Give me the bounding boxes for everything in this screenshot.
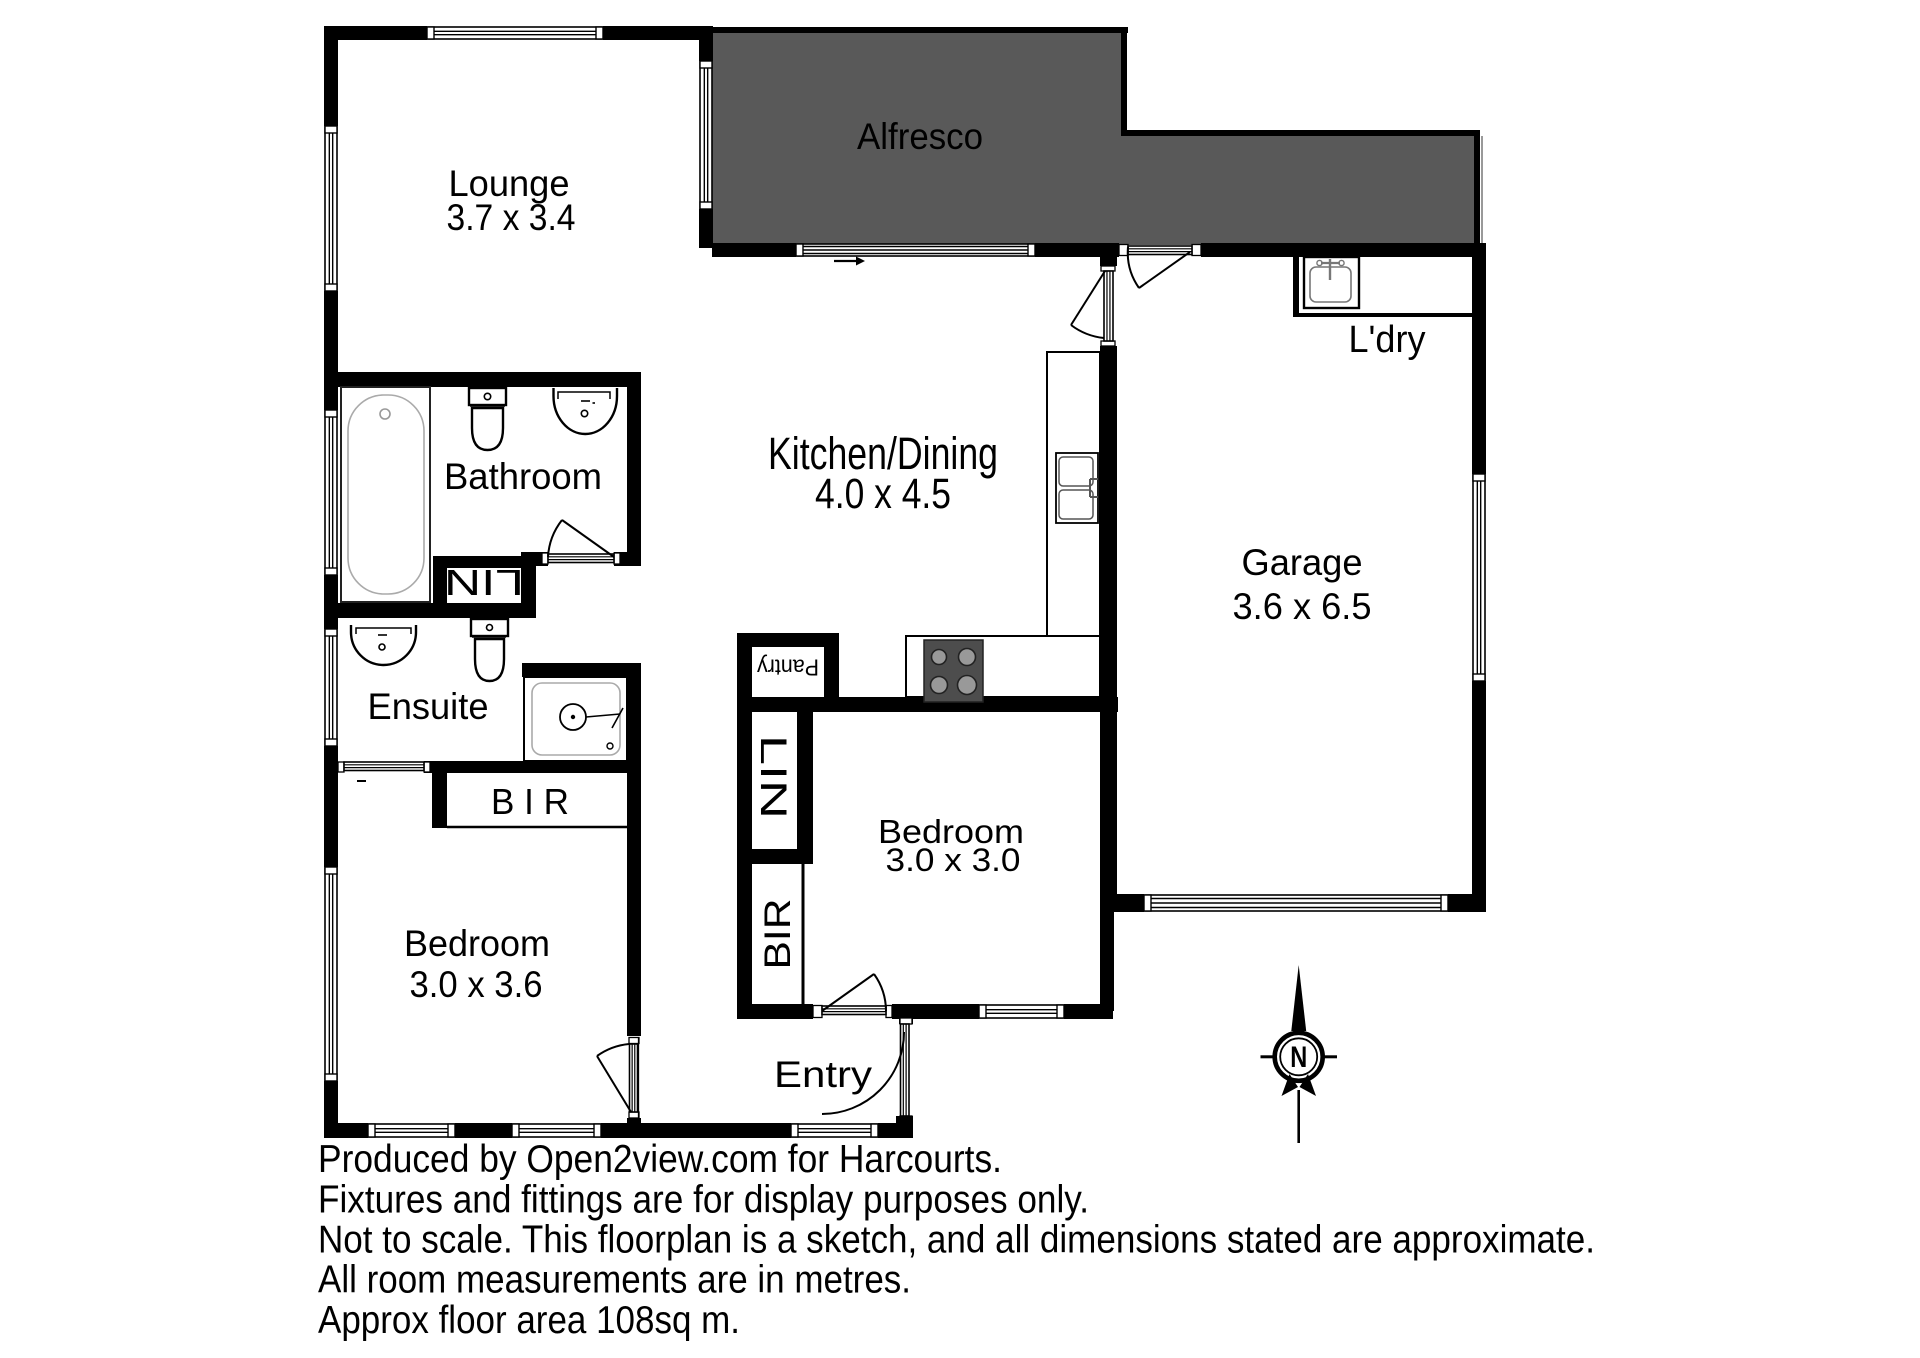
svg-text:Approx floor area 108sq m.: Approx floor area 108sq m. xyxy=(318,1299,740,1342)
svg-text:LIN: LIN xyxy=(444,562,524,603)
svg-text:Produced by Open2view.com for: Produced by Open2view.com for Harcourts. xyxy=(318,1138,1002,1181)
svg-text:All room measurements are in m: All room measurements are in metres. xyxy=(318,1259,911,1302)
svg-text:Fixtures and fittings are for: Fixtures and fittings are for display pu… xyxy=(318,1178,1089,1221)
svg-text:N: N xyxy=(1290,1041,1307,1074)
svg-text:Bathroom: Bathroom xyxy=(444,456,602,497)
svg-text:Bedroom: Bedroom xyxy=(404,923,550,964)
svg-text:3.7 x 3.4: 3.7 x 3.4 xyxy=(447,197,576,238)
svg-text:Ensuite: Ensuite xyxy=(368,686,489,727)
svg-text:LIN: LIN xyxy=(753,735,794,819)
svg-text:Not to scale. This floorplan i: Not to scale. This floorplan is a sketch… xyxy=(318,1219,1595,1262)
svg-text:4.0 x 4.5: 4.0 x 4.5 xyxy=(815,470,951,518)
svg-text:3.6 x 6.5: 3.6 x 6.5 xyxy=(1233,586,1372,627)
svg-text:3.0 x 3.6: 3.0 x 3.6 xyxy=(410,964,543,1005)
svg-text:BIR: BIR xyxy=(757,899,798,970)
svg-text:Entry: Entry xyxy=(774,1054,873,1095)
svg-text:Alfresco: Alfresco xyxy=(857,116,983,157)
svg-text:3.0 x 3.0: 3.0 x 3.0 xyxy=(886,842,1021,878)
svg-text:L'dry: L'dry xyxy=(1349,319,1426,361)
svg-text:B I R: B I R xyxy=(491,781,569,822)
svg-text:Garage: Garage xyxy=(1242,542,1363,583)
svg-text:Pantry: Pantry xyxy=(757,655,819,681)
